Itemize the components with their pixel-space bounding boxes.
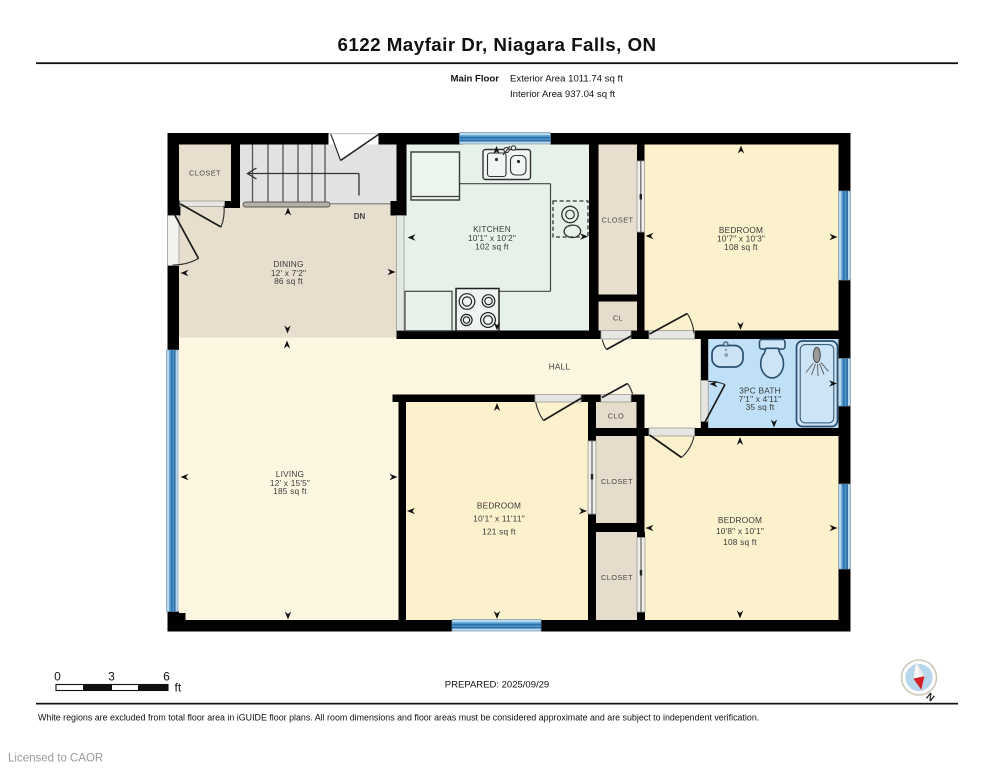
svg-text:CLOSET: CLOSET xyxy=(601,573,633,582)
svg-text:HALL: HALL xyxy=(549,362,571,372)
svg-text:6: 6 xyxy=(163,670,170,684)
svg-text:102 sq ft: 102 sq ft xyxy=(475,242,509,252)
svg-text:ft: ft xyxy=(175,681,182,695)
svg-text:CLOSET: CLOSET xyxy=(601,477,633,486)
svg-text:CLO: CLO xyxy=(608,412,624,421)
svg-text:PREPARED: 2025/09/29: PREPARED: 2025/09/29 xyxy=(445,680,549,691)
svg-text:3: 3 xyxy=(108,670,115,684)
svg-text:86 sq ft: 86 sq ft xyxy=(274,276,303,286)
svg-text:DN: DN xyxy=(354,212,366,221)
svg-text:10'1" x 11'11": 10'1" x 11'11" xyxy=(473,514,525,524)
svg-text:35 sq ft: 35 sq ft xyxy=(746,402,775,412)
svg-text:10'8" x 10'1": 10'8" x 10'1" xyxy=(716,526,764,536)
svg-text:121 sq ft: 121 sq ft xyxy=(482,527,516,537)
svg-text:BEDROOM: BEDROOM xyxy=(718,515,762,525)
svg-text:White regions are excluded fro: White regions are excluded from total fl… xyxy=(38,713,759,723)
svg-text:Interior Area 937.04 sq ft: Interior Area 937.04 sq ft xyxy=(510,89,615,100)
svg-text:BEDROOM: BEDROOM xyxy=(477,501,521,511)
svg-text:CLOSET: CLOSET xyxy=(602,216,634,225)
svg-text:Main Floor: Main Floor xyxy=(451,74,500,85)
svg-text:108 sq ft: 108 sq ft xyxy=(724,242,758,252)
svg-text:CLOSET: CLOSET xyxy=(189,169,221,178)
svg-text:0: 0 xyxy=(54,670,61,684)
svg-text:Licensed to CAOR: Licensed to CAOR xyxy=(8,753,103,765)
svg-text:CL: CL xyxy=(613,314,623,323)
svg-text:108 sq ft: 108 sq ft xyxy=(723,537,757,547)
svg-text:Exterior Area 1011.74 sq ft: Exterior Area 1011.74 sq ft xyxy=(510,74,623,85)
svg-text:185 sq ft: 185 sq ft xyxy=(273,486,307,496)
svg-text:6122 Mayfair Dr, Niagara Falls: 6122 Mayfair Dr, Niagara Falls, ON xyxy=(337,34,656,55)
